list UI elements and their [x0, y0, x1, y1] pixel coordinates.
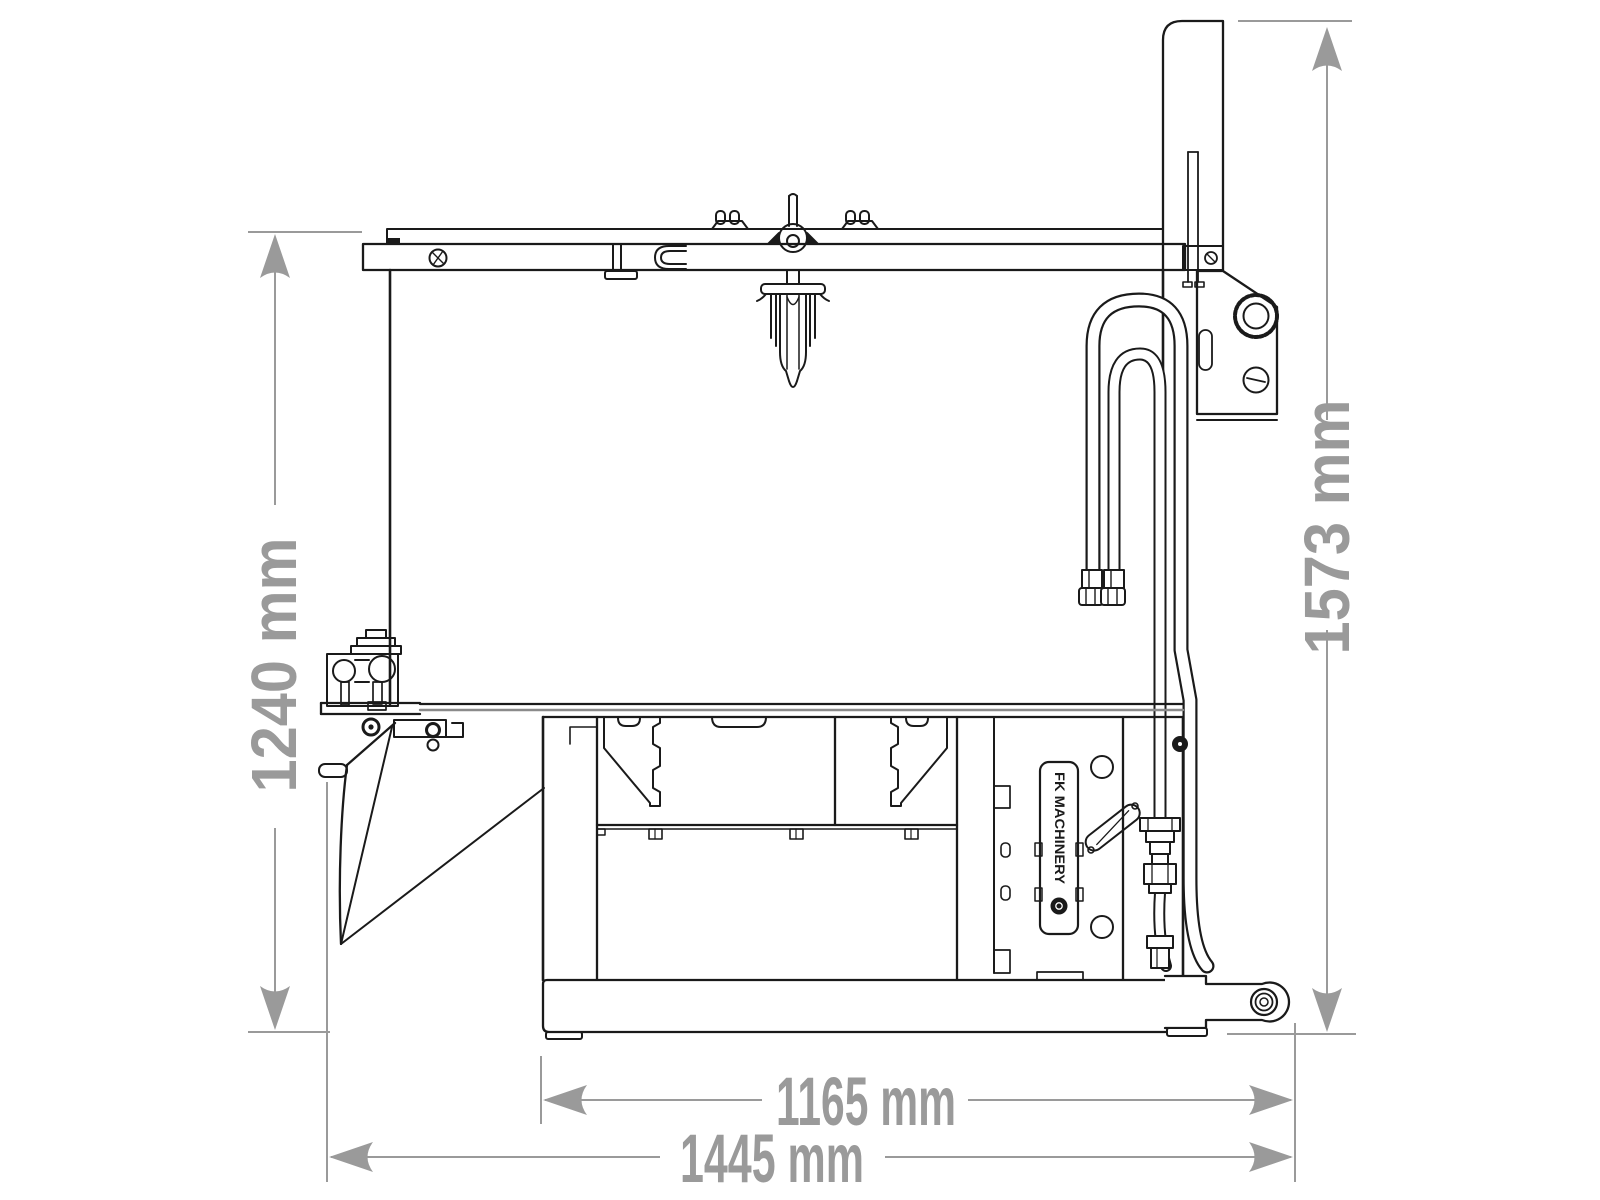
- arrow-down-icon: [1312, 988, 1342, 1032]
- hose-clamp-right: [842, 211, 878, 229]
- gusset-right: [891, 718, 947, 806]
- brand-plate-label: FK MACHINERY: [1052, 772, 1067, 884]
- arrow-right-icon: [1249, 1142, 1293, 1172]
- drawing-canvas: FK MACHINERY: [0, 0, 1600, 1200]
- dimension-drawing: FK MACHINERY: [0, 0, 1600, 1200]
- arrow-down-icon: [260, 986, 290, 1030]
- hinge-assembly: [327, 630, 463, 751]
- dimension-left-height: 1240 mm: [238, 232, 362, 1032]
- arrow-right-icon: [1249, 1085, 1293, 1115]
- dimension-right-height-label: 1573 mm: [1291, 400, 1363, 655]
- control-lever: [1082, 801, 1143, 854]
- gusset-left: [604, 718, 660, 806]
- tow-hitch: [1165, 976, 1289, 1036]
- mount-bracket: [1197, 271, 1277, 420]
- hose-clamp-left: [712, 211, 748, 229]
- arrow-up-icon: [1312, 27, 1342, 71]
- mast: [1163, 21, 1223, 287]
- lower-frame: [543, 717, 1183, 980]
- chute: [319, 723, 544, 944]
- arrow-left-icon: [329, 1142, 373, 1172]
- hose-couplers: [1079, 570, 1125, 605]
- arrow-up-icon: [260, 234, 290, 278]
- dimension-overall-width-label: 1445 mm: [680, 1120, 864, 1197]
- base-skid: [543, 980, 1183, 1039]
- brand-logo-icon: [1051, 898, 1068, 915]
- brand-plate: FK MACHINERY: [1035, 762, 1083, 934]
- dimension-left-height-label: 1240 mm: [238, 538, 310, 793]
- dimension-right-height: 1573 mm: [1227, 21, 1363, 1034]
- dimension-inner-width: 1165 mm: [541, 1023, 1295, 1182]
- arrow-left-icon: [543, 1085, 587, 1115]
- frame-band: [321, 703, 1183, 717]
- top-beam: [363, 229, 1185, 270]
- hanger-bracket: [605, 244, 637, 279]
- agitator-mechanism: [757, 194, 829, 387]
- c-hook: [655, 246, 686, 269]
- machine-drawing: FK MACHINERY: [319, 21, 1289, 1039]
